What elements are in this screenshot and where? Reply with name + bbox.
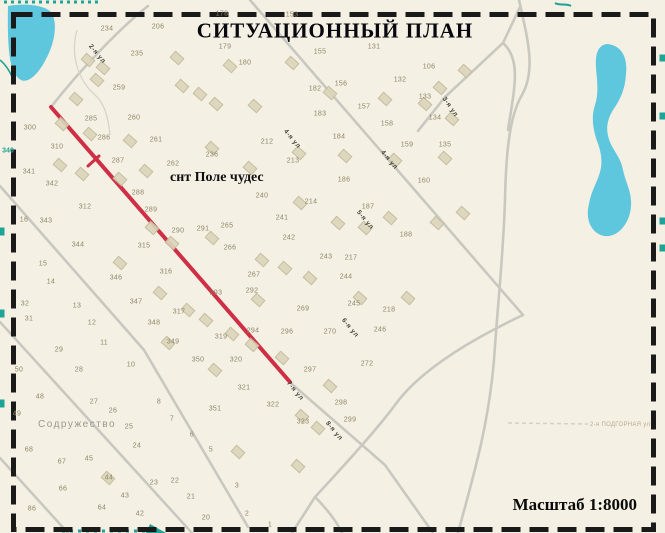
map-title: СИТУАЦИОННЫЙ ПЛАН <box>197 19 473 44</box>
plot-number: 244 <box>340 274 353 281</box>
plot-number: 66 <box>59 486 67 493</box>
plot-number: 133 <box>419 94 432 101</box>
plot-number: 316 <box>160 269 173 276</box>
building <box>251 293 266 308</box>
building <box>175 79 190 94</box>
plot-number: 7 <box>170 416 174 423</box>
plot-number: 266 <box>224 245 237 252</box>
street-name-label: 6-я ул <box>340 317 360 339</box>
building <box>285 56 300 71</box>
plot-number: 178 <box>216 11 229 18</box>
building <box>456 206 471 221</box>
plot-number: 286 <box>98 135 111 142</box>
plot-number: 319 <box>215 334 228 341</box>
plot-number: 29 <box>55 347 63 354</box>
labels-layer: 1781532062341792351801551311061321561821… <box>0 0 665 533</box>
plot-number: 323 <box>297 419 310 426</box>
building <box>69 92 84 107</box>
plot-number: 287 <box>112 158 125 165</box>
plot-number: 132 <box>394 77 407 84</box>
plot-number: 64 <box>98 505 106 512</box>
plot-number: 179 <box>219 44 232 51</box>
plot-number: 68 <box>25 447 33 454</box>
building <box>199 313 214 328</box>
building <box>208 363 223 378</box>
plot-number: 235 <box>131 51 144 58</box>
building <box>323 86 338 101</box>
plot-number: 86 <box>28 506 36 513</box>
plot-number: 234 <box>101 26 114 33</box>
settlement-name-label: снт Поле чудес <box>170 170 264 186</box>
building <box>311 421 326 436</box>
plot-number: 180 <box>239 60 252 67</box>
plot-number: 206 <box>152 24 165 31</box>
plot-number: 23 <box>150 480 158 487</box>
plot-number: 293 <box>210 290 223 297</box>
plot-number: 341 <box>23 169 36 176</box>
plot-number: 135 <box>439 142 452 149</box>
plot-number: 15 <box>39 261 47 268</box>
plot-number: 320 <box>230 357 243 364</box>
plot-number: 16 <box>20 217 28 224</box>
plot-number: 262 <box>167 161 180 168</box>
plot-number: 350 <box>192 357 205 364</box>
plot-number: 11 <box>100 340 108 347</box>
building <box>123 134 138 149</box>
plot-number: 49 <box>13 411 21 418</box>
street-name-label: 7-я ул <box>285 380 305 402</box>
plot-number: 3 <box>235 483 239 490</box>
plot-number: 269 <box>297 306 310 313</box>
building <box>165 236 180 251</box>
building <box>458 64 473 79</box>
building <box>245 338 260 353</box>
plot-number: 24 <box>133 443 141 450</box>
plot-number: 13 <box>73 303 81 310</box>
building <box>248 99 263 114</box>
plot-number: 48 <box>36 394 44 401</box>
building <box>139 164 154 179</box>
plot-number: 1 <box>268 522 272 529</box>
plot-number: 183 <box>314 111 327 118</box>
plot-number: 160 <box>418 178 431 185</box>
plot-number: 299 <box>344 417 357 424</box>
plot-number: 259 <box>113 85 126 92</box>
plot-number: 158 <box>381 121 394 128</box>
plot-number: 261 <box>150 137 163 144</box>
plot-number: 297 <box>304 367 317 374</box>
plot-number: 134 <box>429 115 442 122</box>
plot-number: 25 <box>125 424 133 431</box>
plot-number: 43 <box>121 493 129 500</box>
plot-number: 5 <box>209 447 213 454</box>
plot-number: 157 <box>358 104 371 111</box>
plot-number: 240 <box>256 193 269 200</box>
plot-number: 267 <box>248 272 261 279</box>
plot-number: 242 <box>283 235 296 242</box>
plot-number: 21 <box>187 494 195 501</box>
plot-number: 50 <box>15 367 23 374</box>
plot-number: 186 <box>338 177 351 184</box>
plot-number: 312 <box>79 204 92 211</box>
building <box>90 73 105 88</box>
plot-number: 260 <box>128 115 141 122</box>
building <box>53 158 68 173</box>
plot-number: 298 <box>335 400 348 407</box>
plot-number: 10 <box>127 362 135 369</box>
building <box>193 87 208 102</box>
plot-number: 14 <box>47 279 55 286</box>
plot-number: 236 <box>206 152 219 159</box>
building <box>383 211 398 226</box>
plot-number: 28 <box>75 367 83 374</box>
scale-label: Масштаб 1:8000 <box>513 495 637 515</box>
plot-number: 322 <box>267 402 280 409</box>
building <box>223 59 238 74</box>
plot-number: 45 <box>85 456 93 463</box>
plot-number: 27 <box>90 399 98 406</box>
plot-number: 218 <box>383 307 396 314</box>
plot-number: 159 <box>401 142 414 149</box>
building <box>331 216 346 231</box>
plot-number: 2 <box>245 511 249 518</box>
building <box>170 51 185 66</box>
plot-number: 321 <box>238 385 251 392</box>
plot-number: 292 <box>246 288 259 295</box>
plot-number: 272 <box>361 361 374 368</box>
street-name-label: 4-я ул <box>282 128 302 150</box>
plot-number: 187 <box>362 204 375 211</box>
building <box>255 253 270 268</box>
plot-number: 20 <box>202 515 210 522</box>
plot-number: 213 <box>287 158 300 165</box>
podgornaya-street-label: 2-я ПОДГОРНАЯ ул <box>590 422 650 428</box>
building <box>291 459 306 474</box>
plot-number: 155 <box>314 49 327 56</box>
building <box>401 291 416 306</box>
plot-number: 184 <box>333 134 346 141</box>
plot-number: 290 <box>172 228 185 235</box>
plot-number: 22 <box>171 478 179 485</box>
plot-number: 294 <box>247 328 260 335</box>
building <box>113 172 128 187</box>
plot-number: 289 <box>145 207 158 214</box>
plot-number: 347 <box>130 299 143 306</box>
plot-number: 344 <box>72 242 85 249</box>
plot-number: 8 <box>157 399 161 406</box>
plot-number: 342 <box>46 181 59 188</box>
plot-number: 265 <box>221 223 234 230</box>
plot-number: 246 <box>374 327 387 334</box>
plot-number: 310 <box>51 144 64 151</box>
building <box>231 445 246 460</box>
plot-number: 214 <box>305 199 318 206</box>
plot-number: 270 <box>324 329 337 336</box>
plot-number: 131 <box>368 44 381 51</box>
plot-number: 12 <box>88 320 96 327</box>
plot-number: 188 <box>400 232 413 239</box>
plot-number: 349 <box>167 339 180 346</box>
plot-number: 317 <box>173 309 186 316</box>
situational-plan-map: 1781532062341792351801551311061321561821… <box>0 0 665 533</box>
building <box>55 117 70 132</box>
plot-number: 26 <box>109 408 117 415</box>
street-name-label: 8-я ул <box>324 420 344 442</box>
neighbor-settlement-label: Содружество <box>38 419 116 430</box>
plot-number: 300 <box>24 125 37 132</box>
building <box>438 151 453 166</box>
plot-number: 351 <box>209 406 222 413</box>
plot-number: 288 <box>132 190 145 197</box>
building <box>430 216 445 231</box>
plot-number: 241 <box>276 215 289 222</box>
plot-number: 217 <box>345 255 358 262</box>
building <box>275 351 290 366</box>
building <box>209 97 224 112</box>
plot-number: 44 <box>105 475 113 482</box>
building <box>378 92 393 107</box>
plot-number: 32 <box>21 301 29 308</box>
plot-number: 67 <box>58 459 66 466</box>
plot-number: 315 <box>138 243 151 250</box>
building <box>338 149 353 164</box>
building <box>278 261 293 276</box>
plot-number: 346 <box>110 275 123 282</box>
edge-coordinate-label: 340 <box>2 148 14 155</box>
plot-number: 42 <box>136 511 144 518</box>
plot-number: 106 <box>423 64 436 71</box>
building <box>205 231 220 246</box>
plot-number: 182 <box>309 86 322 93</box>
plot-number: 243 <box>320 254 333 261</box>
plot-number: 296 <box>281 329 294 336</box>
plot-number: 285 <box>85 116 98 123</box>
building <box>83 127 98 142</box>
building <box>323 379 338 394</box>
building <box>303 271 318 286</box>
plot-number: 348 <box>148 320 161 327</box>
building <box>75 167 90 182</box>
building <box>113 256 128 271</box>
plot-number: 153 <box>286 12 299 19</box>
building <box>145 221 160 236</box>
plot-number: 291 <box>197 226 210 233</box>
building <box>153 286 168 301</box>
plot-number: 212 <box>261 139 274 146</box>
plot-number: 245 <box>348 301 361 308</box>
building <box>433 81 448 96</box>
plot-number: 156 <box>335 81 348 88</box>
plot-number: 343 <box>40 218 53 225</box>
plot-number: 31 <box>25 316 33 323</box>
plot-number: 6 <box>190 432 194 439</box>
